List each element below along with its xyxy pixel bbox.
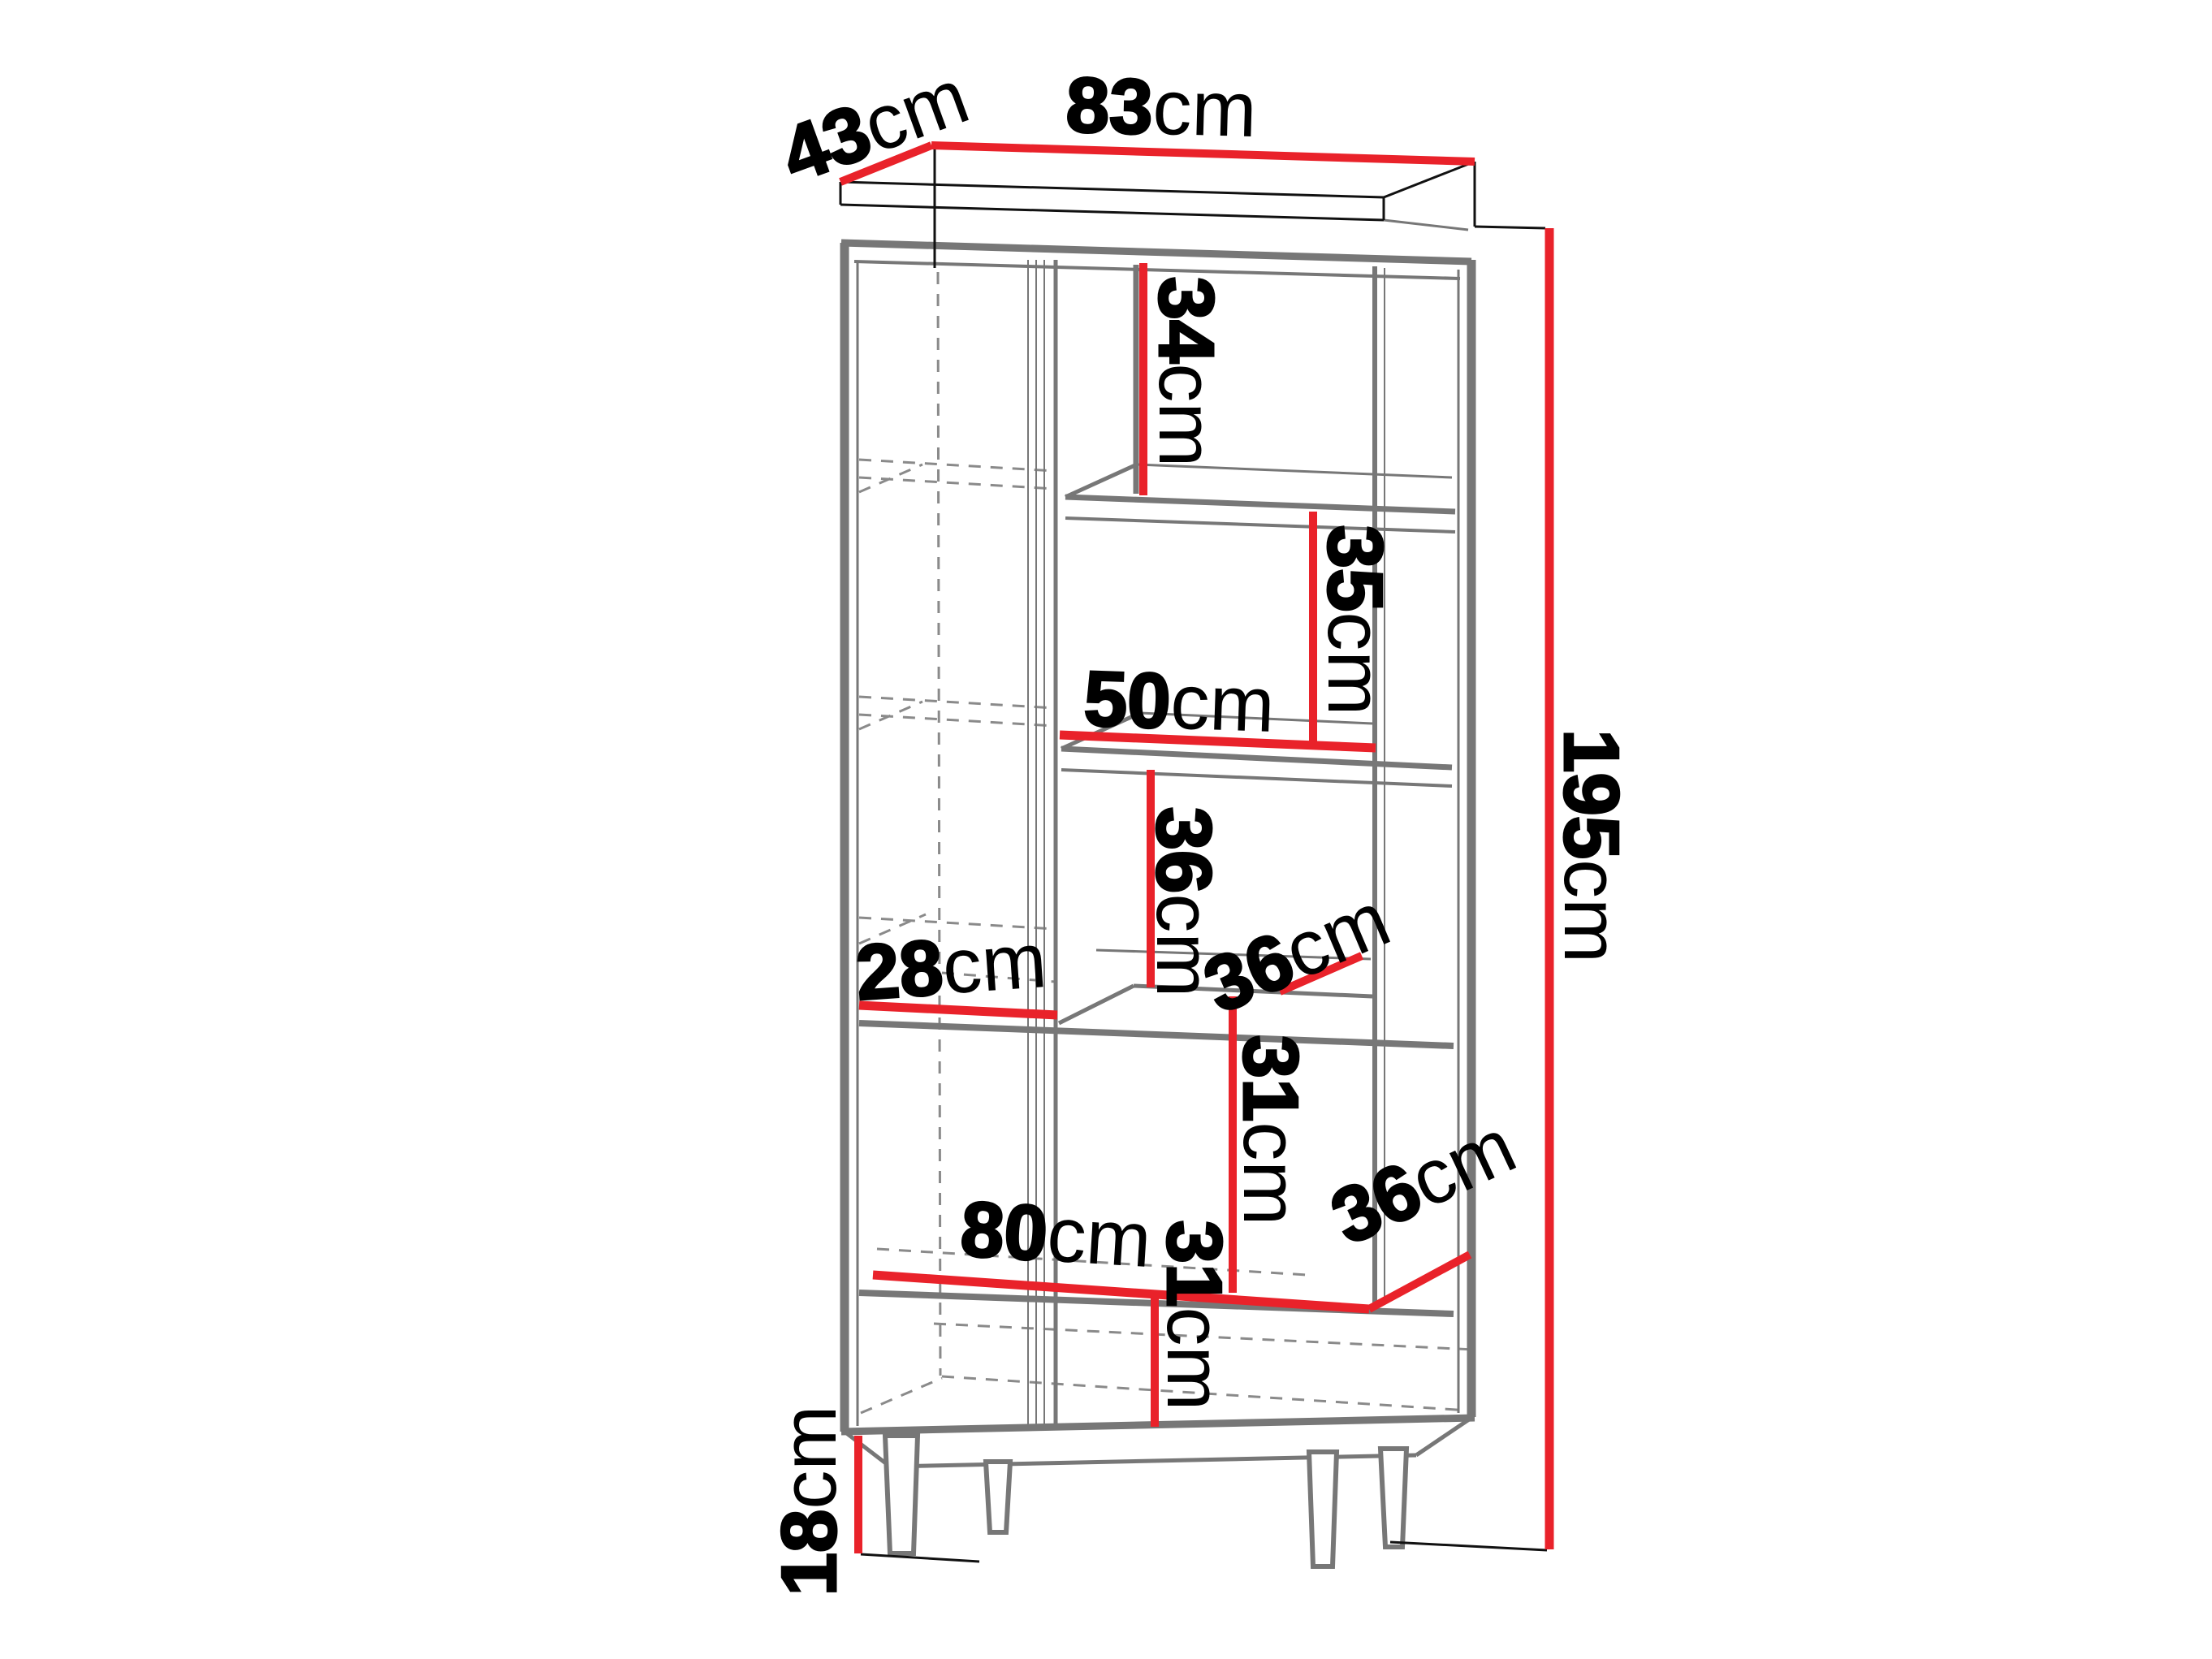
dimension-label-width-top: 83cm <box>1065 62 1257 153</box>
dimension-label-cubby-top-height: 34cm <box>1143 277 1229 468</box>
reference-ext-top-right-h <box>1475 227 1545 228</box>
dimension-label-left-cubby-width: 28cm <box>853 917 1050 1017</box>
leg-back-right <box>1380 1449 1406 1547</box>
dimension-label-shelf-width-80: 80cm <box>958 1186 1154 1284</box>
dimension-label-height-total: 195cm <box>1548 729 1635 963</box>
leg-front-left <box>885 1436 918 1553</box>
dimension-label-cubby-bottom-height: 31cm <box>1151 1220 1238 1411</box>
leg-front-right <box>1309 1452 1337 1566</box>
cabinet-dimension-diagram: 43cm83cm195cm34cm35cm50cm36cm28cm36cm31c… <box>0 0 2212 1659</box>
leg-back-left <box>986 1462 1010 1532</box>
dimension-label-leg-height: 18cm <box>766 1406 853 1596</box>
dimension-label-shelf-width-50: 50cm <box>1082 655 1276 749</box>
dimension-label-cubby-4-height: 31cm <box>1227 1035 1314 1226</box>
dimension-label-cubby-2-height: 35cm <box>1311 525 1398 716</box>
diagram-page: 43cm83cm195cm34cm35cm50cm36cm28cm36cm31c… <box>0 0 2212 1659</box>
